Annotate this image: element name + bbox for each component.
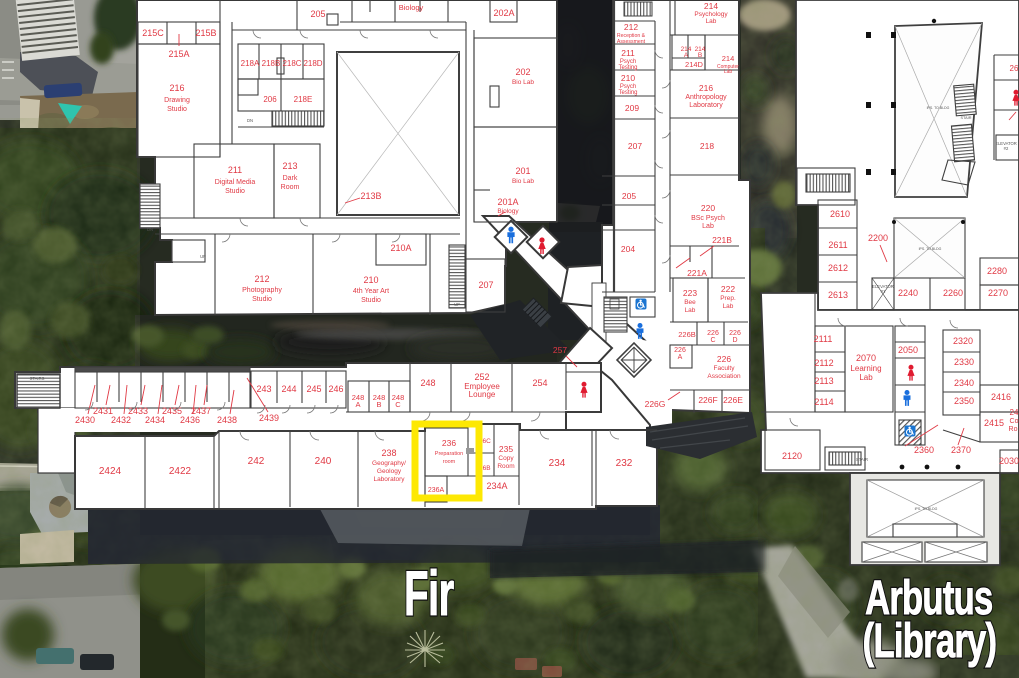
- svg-text:226: 226: [717, 354, 731, 364]
- svg-text:Studio: Studio: [167, 106, 187, 113]
- svg-text:Assessment: Assessment: [617, 39, 646, 45]
- svg-text:206: 206: [263, 95, 277, 104]
- svg-text:212: 212: [624, 22, 638, 32]
- svg-text:2611: 2611: [828, 240, 847, 250]
- svg-text:STAIR: STAIR: [856, 457, 868, 462]
- svg-text:Lab: Lab: [723, 303, 734, 310]
- svg-text:Laboratory: Laboratory: [689, 102, 723, 109]
- svg-text:Studio: Studio: [361, 297, 381, 304]
- svg-text:Lab: Lab: [702, 223, 714, 230]
- svg-text:#1: #1: [881, 289, 886, 294]
- svg-text:218B: 218B: [262, 59, 281, 68]
- svg-text:2112: 2112: [814, 358, 833, 368]
- svg-text:2030: 2030: [999, 456, 1019, 466]
- svg-text:Lounge: Lounge: [469, 390, 496, 399]
- svg-text:IPS. TO BLDG: IPS. TO BLDG: [915, 507, 938, 511]
- svg-text:Photography: Photography: [242, 287, 282, 294]
- svg-text:Digital Media: Digital Media: [215, 179, 256, 186]
- svg-text:2438: 2438: [217, 415, 237, 425]
- svg-text:248: 248: [420, 378, 435, 388]
- svg-text:2111: 2111: [814, 334, 833, 344]
- svg-text:Testing: Testing: [618, 65, 637, 71]
- svg-text:2200: 2200: [868, 233, 888, 243]
- svg-text:Psychology: Psychology: [694, 11, 728, 18]
- svg-text:202: 202: [515, 67, 530, 77]
- svg-text:Drawing: Drawing: [164, 97, 190, 104]
- svg-text:216: 216: [169, 83, 184, 93]
- svg-text:211: 211: [228, 165, 242, 175]
- svg-text:226: 226: [674, 347, 686, 354]
- svg-text:212: 212: [254, 274, 269, 284]
- svg-text:2434: 2434: [145, 415, 165, 425]
- svg-text:215C: 215C: [142, 28, 164, 38]
- svg-text:2422: 2422: [169, 466, 192, 477]
- svg-text:Association: Association: [707, 373, 741, 380]
- svg-text:218C: 218C: [282, 59, 301, 68]
- svg-text:4th Year Art: 4th Year Art: [353, 288, 389, 295]
- svg-text:226: 226: [729, 330, 741, 337]
- svg-text:214D: 214D: [685, 60, 704, 69]
- svg-text:B: B: [698, 52, 702, 59]
- svg-text:Bio Lab: Bio Lab: [512, 178, 534, 185]
- svg-text:216: 216: [699, 83, 713, 93]
- svg-text:Copy: Copy: [498, 455, 514, 462]
- svg-text:207: 207: [628, 141, 642, 151]
- svg-text:213: 213: [282, 161, 297, 171]
- svg-text:234: 234: [549, 458, 566, 469]
- svg-text:Preparation: Preparation: [435, 451, 463, 457]
- svg-text:2050: 2050: [898, 345, 918, 355]
- svg-text:2240: 2240: [898, 288, 918, 298]
- svg-text:Dark: Dark: [283, 175, 298, 182]
- svg-text:Anthropology: Anthropology: [685, 94, 727, 101]
- svg-text:IPS. TO BLDG: IPS. TO BLDG: [919, 247, 942, 251]
- svg-text:A: A: [355, 400, 360, 409]
- svg-text:218A: 218A: [241, 59, 260, 68]
- svg-text:2113: 2113: [814, 376, 833, 386]
- svg-text:2270: 2270: [988, 288, 1008, 298]
- svg-text:C: C: [395, 400, 401, 409]
- svg-text:257: 257: [553, 345, 567, 355]
- svg-text:2424: 2424: [99, 466, 122, 477]
- svg-text:Lab: Lab: [706, 18, 717, 25]
- svg-text:2350: 2350: [954, 396, 974, 406]
- svg-text:Lab: Lab: [724, 69, 733, 75]
- svg-text:215A: 215A: [168, 49, 189, 59]
- svg-text:254: 254: [532, 378, 547, 388]
- svg-text:UP: UP: [200, 254, 206, 259]
- svg-text:234A: 234A: [486, 481, 507, 491]
- svg-text:245: 245: [306, 384, 321, 394]
- svg-text:236: 236: [442, 438, 456, 448]
- svg-text:205: 205: [310, 9, 325, 19]
- svg-text:221B: 221B: [712, 235, 732, 245]
- svg-text:Room: Room: [281, 184, 300, 191]
- svg-text:243: 243: [256, 384, 271, 394]
- svg-text:A: A: [678, 354, 683, 361]
- svg-text:226E: 226E: [723, 395, 743, 405]
- svg-text:205: 205: [622, 191, 636, 201]
- svg-text:2610: 2610: [830, 209, 850, 219]
- svg-text:214: 214: [704, 1, 718, 11]
- svg-text:2330: 2330: [954, 357, 974, 367]
- svg-text:210: 210: [621, 73, 635, 83]
- svg-text:218E: 218E: [294, 95, 313, 104]
- svg-text:D: D: [732, 337, 737, 344]
- svg-text:DN: DN: [247, 118, 253, 123]
- svg-text:Biology: Biology: [399, 3, 424, 12]
- svg-text:201: 201: [515, 166, 530, 176]
- svg-text:221A: 221A: [687, 268, 707, 278]
- svg-text:2114: 2114: [814, 397, 833, 407]
- svg-text:Ro: Ro: [1009, 426, 1018, 433]
- svg-text:2340: 2340: [954, 378, 974, 388]
- svg-text:BSc Psych: BSc Psych: [691, 215, 725, 222]
- svg-text:2432: 2432: [111, 415, 131, 425]
- svg-text:2280: 2280: [987, 266, 1007, 276]
- svg-text:236A: 236A: [428, 487, 445, 494]
- svg-text:218D: 218D: [303, 59, 322, 68]
- svg-text:220: 220: [701, 203, 715, 213]
- svg-text:210A: 210A: [390, 243, 411, 253]
- svg-text:Faculty: Faculty: [714, 365, 736, 372]
- svg-text:214: 214: [722, 54, 735, 63]
- svg-text:2430: 2430: [75, 415, 95, 425]
- svg-text:Laboratory: Laboratory: [373, 476, 405, 483]
- svg-text:232: 232: [616, 458, 633, 469]
- svg-text:209: 209: [625, 103, 639, 113]
- svg-text:238: 238: [381, 448, 396, 458]
- svg-text:2612: 2612: [828, 263, 848, 273]
- svg-text:201A: 201A: [497, 197, 518, 207]
- svg-text:218: 218: [700, 141, 714, 151]
- svg-text:226F: 226F: [698, 395, 717, 405]
- svg-text:Studio: Studio: [225, 188, 245, 195]
- svg-text:2415: 2415: [984, 418, 1004, 428]
- svg-text:Co: Co: [1010, 418, 1019, 425]
- svg-text:Lab: Lab: [859, 373, 873, 382]
- svg-text:226: 226: [707, 330, 719, 337]
- svg-text:240: 240: [315, 456, 332, 467]
- svg-text:24: 24: [1010, 408, 1019, 417]
- svg-text:210: 210: [363, 275, 378, 285]
- svg-text:DN: DN: [147, 227, 153, 232]
- svg-text:235: 235: [499, 444, 513, 454]
- svg-text:207: 207: [478, 280, 493, 290]
- svg-text:2360: 2360: [914, 445, 934, 455]
- svg-text:Geography/: Geography/: [372, 460, 406, 467]
- svg-text:Biology: Biology: [497, 208, 519, 215]
- svg-text:26: 26: [1010, 64, 1019, 73]
- svg-text:#2: #2: [1004, 146, 1009, 151]
- svg-text:2436: 2436: [180, 415, 200, 425]
- svg-text:STAIR: STAIR: [961, 116, 972, 120]
- svg-text:242: 242: [248, 456, 265, 467]
- svg-text:2120: 2120: [782, 451, 802, 461]
- svg-text:2070: 2070: [856, 353, 876, 363]
- svg-text:UP: UP: [454, 302, 460, 307]
- svg-text:Geology: Geology: [377, 468, 402, 475]
- svg-text:Bee: Bee: [684, 299, 696, 306]
- svg-text:Studio: Studio: [252, 296, 272, 303]
- svg-text:room: room: [443, 459, 456, 465]
- svg-text:244: 244: [281, 384, 296, 394]
- svg-text:226B: 226B: [678, 330, 696, 339]
- svg-text:STAIRS: STAIRS: [30, 376, 45, 381]
- svg-text:Lab: Lab: [685, 307, 696, 314]
- svg-text:Fir: Fir: [404, 559, 454, 629]
- svg-text:226G: 226G: [645, 399, 666, 409]
- svg-text:2260: 2260: [943, 288, 963, 298]
- svg-text:2370: 2370: [951, 445, 971, 455]
- svg-text:252: 252: [474, 372, 489, 382]
- svg-text:(Library): (Library): [863, 613, 997, 667]
- svg-text:223: 223: [683, 288, 697, 298]
- svg-text:Room: Room: [497, 463, 514, 470]
- svg-text:204: 204: [621, 244, 635, 254]
- svg-text:Bio Lab: Bio Lab: [512, 79, 534, 86]
- svg-text:Prep.: Prep.: [720, 295, 736, 302]
- svg-text:C: C: [710, 337, 715, 344]
- svg-text:2613: 2613: [828, 290, 848, 300]
- svg-text:IPS. TO BLDG: IPS. TO BLDG: [927, 106, 950, 110]
- svg-text:2416: 2416: [991, 392, 1011, 402]
- svg-text:2439: 2439: [259, 413, 279, 423]
- svg-text:213B: 213B: [360, 191, 381, 201]
- svg-text:Testing: Testing: [618, 90, 637, 96]
- svg-text:A: A: [684, 52, 689, 59]
- svg-text:215B: 215B: [195, 28, 216, 38]
- svg-text:246: 246: [328, 384, 343, 394]
- svg-text:B: B: [376, 400, 381, 409]
- svg-text:211: 211: [621, 48, 635, 58]
- svg-text:Learning: Learning: [850, 364, 881, 373]
- svg-text:202A: 202A: [493, 8, 514, 18]
- svg-text:2320: 2320: [953, 336, 973, 346]
- svg-text:222: 222: [721, 284, 735, 294]
